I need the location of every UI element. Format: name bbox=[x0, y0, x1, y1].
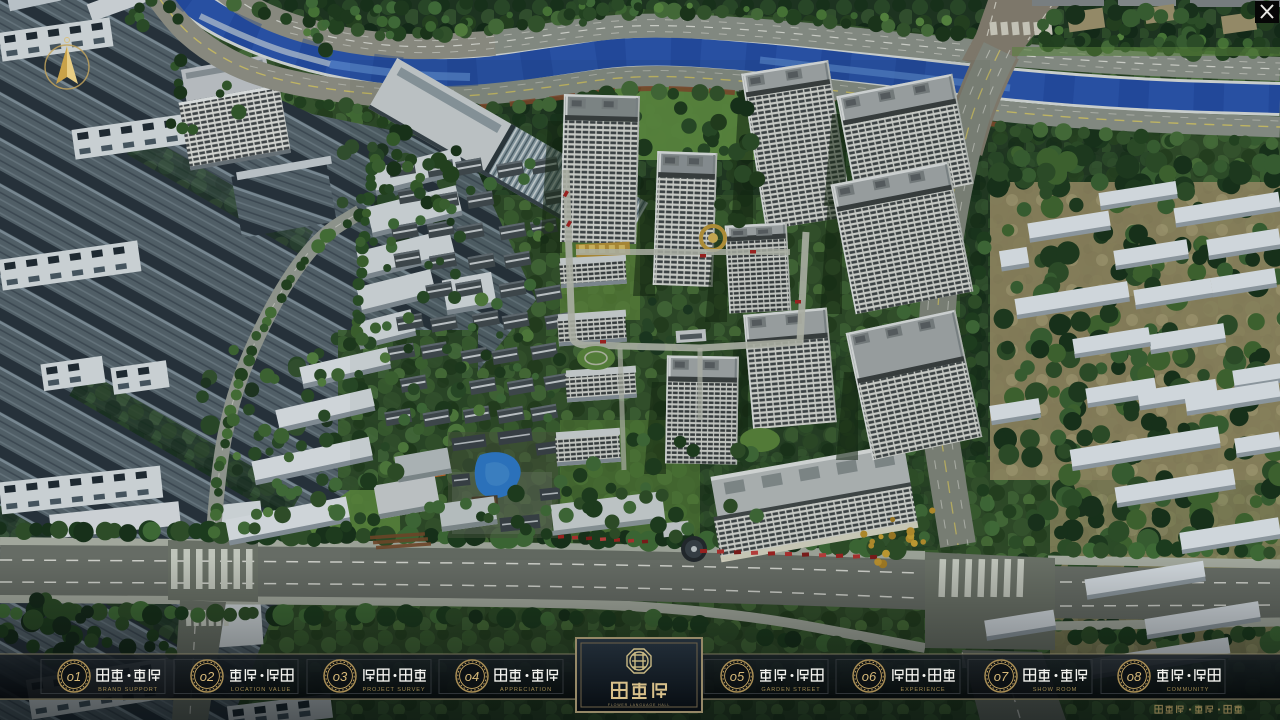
svg-text:o1: o1 bbox=[67, 669, 81, 684]
svg-text:SHOW ROOM: SHOW ROOM bbox=[1033, 687, 1077, 693]
svg-text:BRAND SUPPORT: BRAND SUPPORT bbox=[98, 687, 158, 693]
svg-text:o8: o8 bbox=[1127, 669, 1142, 684]
svg-text:o2: o2 bbox=[200, 669, 215, 684]
svg-text:FLOWER LANGUAGE HALL: FLOWER LANGUAGE HALL bbox=[608, 703, 670, 707]
svg-text:PROJECT SURVEY: PROJECT SURVEY bbox=[362, 687, 425, 693]
svg-text:o4: o4 bbox=[465, 669, 479, 684]
svg-text:GARDEN STREET: GARDEN STREET bbox=[761, 687, 820, 693]
svg-text:o6: o6 bbox=[862, 669, 877, 684]
svg-text:o3: o3 bbox=[333, 669, 348, 684]
svg-text:EXPERIENCE: EXPERIENCE bbox=[900, 687, 945, 693]
svg-text:COMMUNITY: COMMUNITY bbox=[1167, 687, 1210, 693]
svg-text:o7: o7 bbox=[994, 669, 1009, 684]
svg-text:APPRECIATION: APPRECIATION bbox=[500, 687, 552, 693]
svg-text:LOCATION VALUE: LOCATION VALUE bbox=[231, 687, 291, 693]
svg-text:o5: o5 bbox=[730, 669, 745, 684]
